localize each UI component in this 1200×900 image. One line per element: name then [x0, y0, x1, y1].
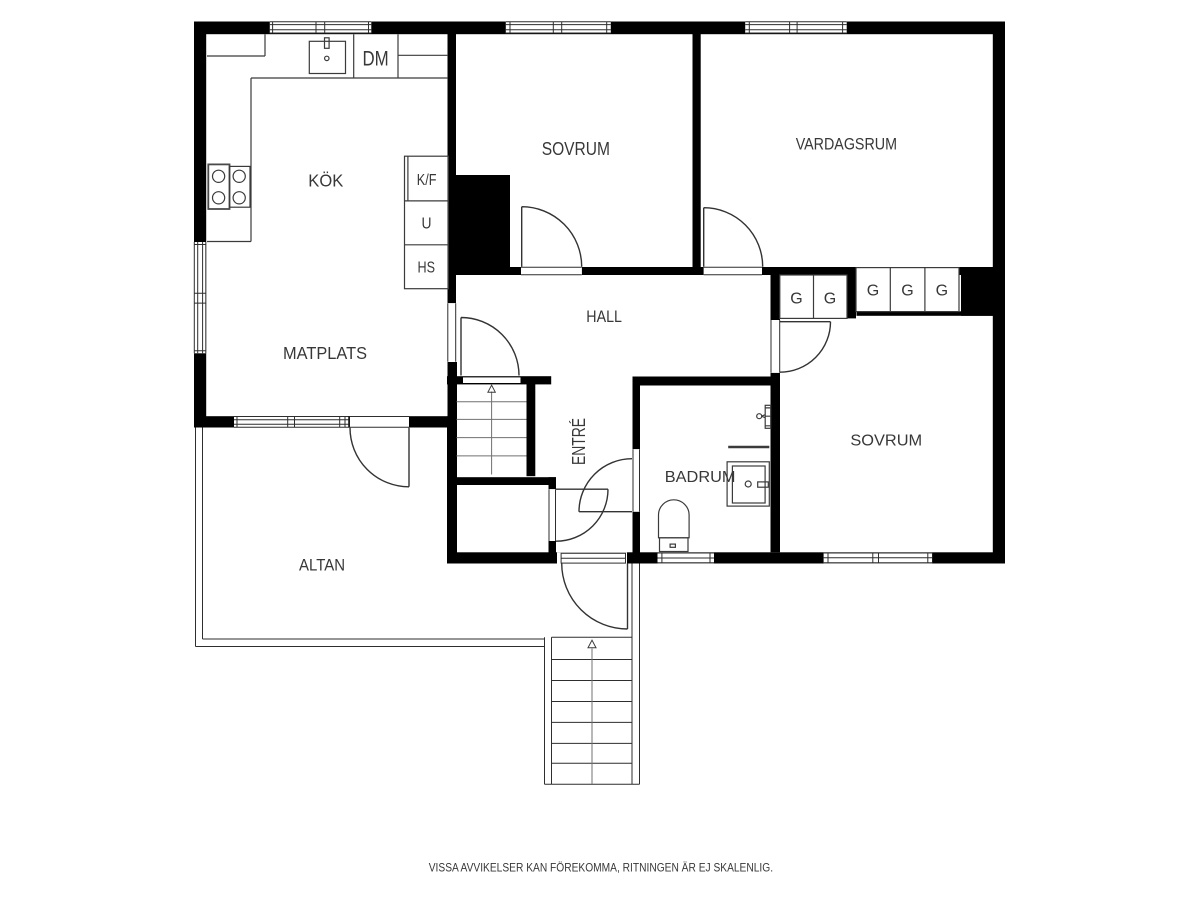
svg-text:MATPLATS: MATPLATS	[283, 343, 367, 363]
svg-text:ENTRÉ: ENTRÉ	[568, 418, 589, 465]
svg-text:VISSA AVVIKELSER KAN FÖREKOMMA: VISSA AVVIKELSER KAN FÖREKOMMA, RITNINGE…	[429, 862, 773, 874]
svg-text:G: G	[790, 291, 802, 308]
svg-text:DM: DM	[363, 48, 389, 71]
svg-text:K/F: K/F	[417, 172, 437, 189]
svg-text:G: G	[867, 283, 879, 300]
svg-text:HS: HS	[418, 260, 436, 277]
svg-text:ALTAN: ALTAN	[299, 557, 345, 575]
svg-text:VARDAGSRUM: VARDAGSRUM	[796, 134, 897, 153]
svg-text:HALL: HALL	[586, 307, 622, 326]
svg-text:SOVRUM: SOVRUM	[542, 139, 610, 159]
svg-text:SOVRUM: SOVRUM	[850, 433, 922, 450]
svg-text:KÖK: KÖK	[308, 171, 343, 191]
svg-text:BADRUM: BADRUM	[665, 469, 736, 486]
svg-text:G: G	[901, 283, 913, 300]
svg-text:G: G	[936, 283, 948, 300]
svg-text:U: U	[422, 216, 432, 233]
svg-text:G: G	[824, 291, 836, 308]
